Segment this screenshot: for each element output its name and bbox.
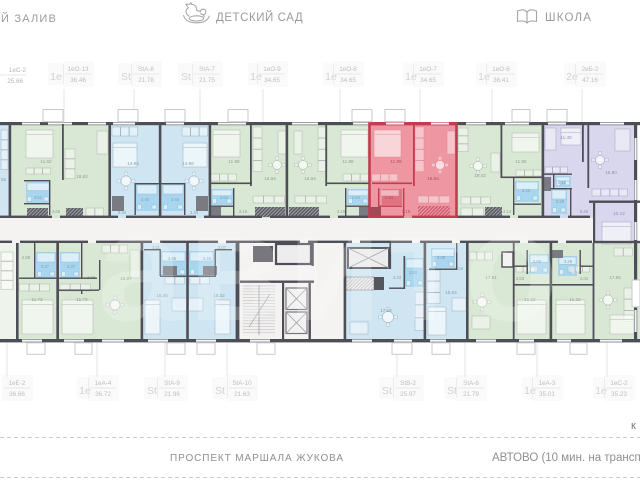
svg-text:11.98: 11.98 [342, 159, 354, 164]
svg-text:3.37: 3.37 [41, 264, 50, 269]
svg-text:36.41: 36.41 [493, 77, 509, 84]
svg-text:ПРОСПЕКТ МАРШАЛА ЖУКОВА: ПРОСПЕКТ МАРШАЛА ЖУКОВА [170, 453, 344, 464]
svg-text:21.75: 21.75 [199, 77, 215, 84]
svg-text:St: St [121, 71, 131, 83]
svg-text:1еС-2: 1еС-2 [610, 380, 628, 387]
svg-text:10.12: 10.12 [613, 211, 625, 216]
svg-text:36.46: 36.46 [70, 77, 86, 84]
svg-text:1е: 1е [478, 71, 490, 83]
svg-text:34.65: 34.65 [420, 77, 436, 84]
svg-text:1е: 1е [405, 71, 417, 83]
svg-text:2еБ-2: 2еБ-2 [582, 66, 599, 73]
svg-text:St: St [447, 385, 457, 397]
svg-text:18.42: 18.42 [474, 173, 486, 178]
svg-text:ДЕТСКИЙ САД: ДЕТСКИЙ САД [216, 11, 303, 24]
svg-text:34.65: 34.65 [340, 77, 356, 84]
svg-text:21.78: 21.78 [138, 77, 154, 84]
svg-text:1еО-9: 1еО-9 [263, 66, 281, 73]
svg-text:1е: 1е [325, 71, 337, 83]
svg-text:11.98: 11.98 [228, 159, 240, 164]
svg-text:StА-9: StА-9 [164, 380, 180, 387]
svg-text:25.66: 25.66 [7, 78, 23, 85]
svg-text:1е: 1е [50, 71, 62, 83]
svg-text:1еА-3: 1еА-3 [539, 380, 556, 387]
svg-text:14.96: 14.96 [182, 161, 194, 166]
svg-text:авито: авито [97, 180, 562, 353]
svg-text:21.96: 21.96 [164, 391, 180, 398]
svg-text:3.37: 3.37 [67, 264, 76, 269]
svg-text:11.73: 11.73 [31, 297, 43, 302]
svg-text:36.72: 36.72 [95, 391, 111, 398]
svg-text:3.29: 3.29 [564, 259, 573, 264]
svg-text:14.96: 14.96 [127, 161, 139, 166]
svg-text:34.65: 34.65 [264, 77, 280, 84]
svg-text:35.01: 35.01 [539, 391, 555, 398]
svg-text:ШКОЛА: ШКОЛА [545, 12, 592, 24]
svg-text:47.16: 47.16 [582, 77, 598, 84]
svg-text:18.62: 18.62 [76, 174, 88, 179]
svg-text:Й ЗАЛИВ: Й ЗАЛИВ [1, 12, 57, 25]
svg-text:1.04: 1.04 [580, 276, 589, 281]
svg-text:1е: 1е [524, 385, 536, 397]
svg-text:1еО-6: 1еО-6 [492, 66, 510, 73]
svg-text:StА-7: StА-7 [199, 66, 215, 73]
svg-text:1е: 1е [79, 385, 91, 397]
svg-text:36.66: 36.66 [9, 391, 25, 398]
svg-text:35.23: 35.23 [611, 391, 627, 398]
svg-text:11.62: 11.62 [40, 159, 52, 164]
svg-text:1еА-4: 1еА-4 [95, 380, 112, 387]
svg-text:1еЕ-2: 1еЕ-2 [9, 380, 26, 387]
svg-text:17.68: 17.68 [609, 275, 621, 280]
svg-text:1е: 1е [250, 71, 262, 83]
svg-text:11.40: 11.40 [560, 135, 572, 140]
svg-text:АВТОВО (10 мин. на трансп: АВТОВО (10 мин. на трансп [492, 452, 640, 464]
svg-text:11.73: 11.73 [76, 297, 88, 302]
svg-text:11.22: 11.22 [569, 297, 581, 302]
svg-text:StА-10: StА-10 [232, 380, 252, 387]
svg-text:1е: 1е [595, 385, 607, 397]
svg-text:St: St [147, 385, 157, 397]
svg-text:21.63: 21.63 [234, 391, 250, 398]
svg-text:3.68: 3.68 [52, 209, 61, 214]
svg-text:к: к [631, 420, 636, 432]
svg-text:1еС-2: 1еС-2 [9, 67, 27, 74]
svg-text:St: St [215, 385, 225, 397]
svg-text:1еО-13: 1еО-13 [67, 66, 89, 73]
svg-text:2е: 2е [566, 71, 578, 83]
svg-text:6.40: 6.40 [580, 209, 589, 214]
svg-text:25.97: 25.97 [400, 391, 416, 398]
svg-text:St: St [382, 385, 392, 397]
svg-text:21.79: 21.79 [463, 391, 479, 398]
svg-text:11.55: 11.55 [515, 159, 527, 164]
svg-text:11.98: 11.98 [390, 159, 402, 164]
svg-text:1еО-7: 1еО-7 [419, 66, 437, 73]
svg-text:St: St [181, 71, 191, 83]
svg-text:65: 65 [1, 177, 7, 182]
svg-text:2.88: 2.88 [22, 255, 31, 260]
svg-text:StА-6: StА-6 [463, 380, 479, 387]
svg-text:StВ-2: StВ-2 [400, 380, 416, 387]
svg-text:1еО-8: 1еО-8 [339, 66, 357, 73]
svg-text:3.51: 3.51 [34, 195, 43, 200]
svg-text:StА-8: StА-8 [138, 66, 154, 73]
svg-text:16.50: 16.50 [605, 170, 617, 175]
